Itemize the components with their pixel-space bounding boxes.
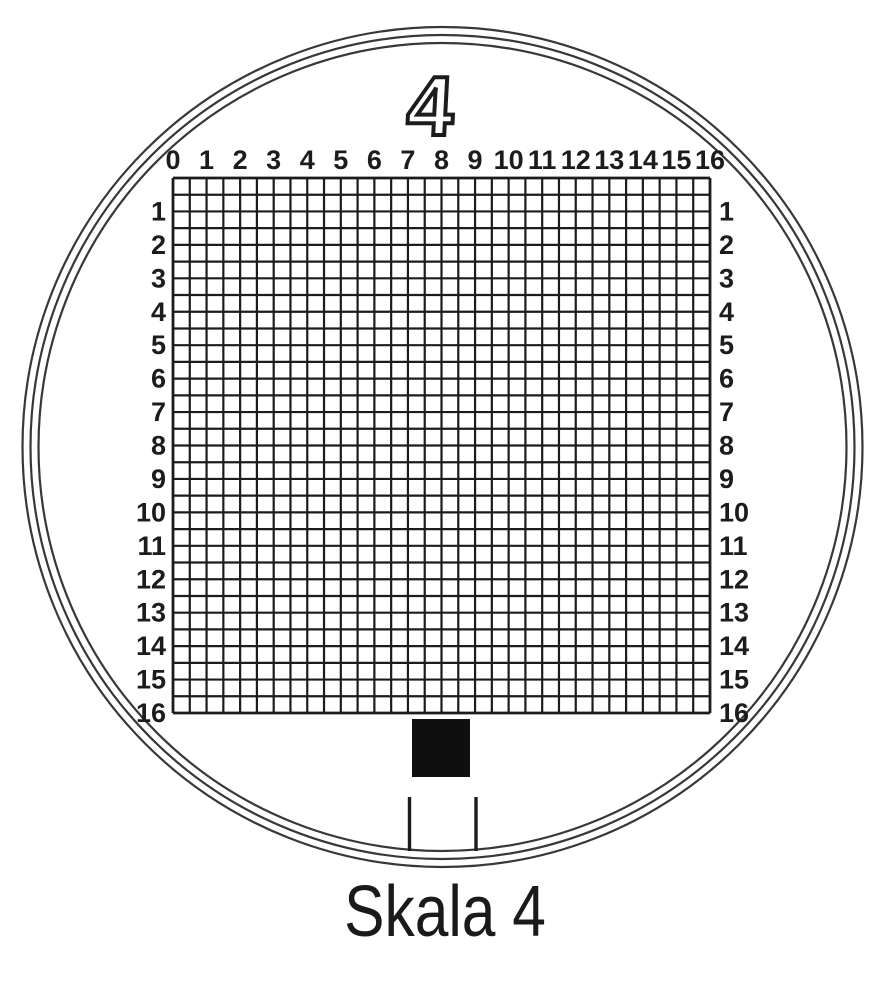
axis-label-right: 15 xyxy=(719,665,749,695)
axis-label-top: 1 xyxy=(199,145,214,175)
axis-label-right: 14 xyxy=(719,631,749,661)
axis-label-top: 0 xyxy=(165,145,180,175)
axis-label-right: 1 xyxy=(719,196,734,226)
axis-label-top: 12 xyxy=(561,145,591,175)
axis-label-top: 10 xyxy=(494,145,524,175)
reticle-graphic: 0123456789101112131415161234567891011121… xyxy=(0,0,875,1000)
axis-label-top: 11 xyxy=(528,145,557,175)
axis-label-right: 2 xyxy=(719,230,734,260)
axis-label-top: 9 xyxy=(468,145,483,175)
axis-label-right: 10 xyxy=(719,497,749,527)
calibration-square xyxy=(412,719,470,777)
axis-label-right: 5 xyxy=(719,330,734,360)
axis-label-right: 6 xyxy=(719,364,734,394)
axis-label-left: 15 xyxy=(136,665,166,695)
axis-label-top: 3 xyxy=(266,145,281,175)
axis-label-right: 13 xyxy=(719,598,749,628)
axis-label-left: 16 xyxy=(136,698,166,728)
axis-label-right: 12 xyxy=(719,564,749,594)
axis-label-left: 12 xyxy=(136,564,166,594)
axis-label-top: 4 xyxy=(300,145,315,175)
axis-label-right: 7 xyxy=(719,397,734,427)
axis-label-right: 16 xyxy=(719,698,749,728)
axis-label-right: 11 xyxy=(719,531,748,561)
axis-label-right: 3 xyxy=(719,263,734,293)
axis-label-left: 1 xyxy=(151,196,166,226)
axis-label-top: 6 xyxy=(367,145,382,175)
axis-label-left: 11 xyxy=(137,531,166,561)
axis-label-left: 2 xyxy=(151,230,166,260)
axis-label-left: 4 xyxy=(151,297,166,327)
axis-label-top: 15 xyxy=(661,145,691,175)
axis-label-left: 5 xyxy=(151,330,166,360)
axis-label-left: 10 xyxy=(136,497,166,527)
axis-label-left: 7 xyxy=(151,397,166,427)
axis-label-top: 2 xyxy=(233,145,248,175)
axis-label-right: 4 xyxy=(719,297,734,327)
axis-label-right: 8 xyxy=(719,431,734,461)
axis-label-left: 6 xyxy=(151,364,166,394)
scale-number-badge: 4 xyxy=(405,59,457,153)
axis-label-left: 14 xyxy=(136,631,166,661)
axis-label-top: 5 xyxy=(333,145,348,175)
caption-label: Skala 4 xyxy=(277,876,613,948)
axis-label-left: 8 xyxy=(151,431,166,461)
axis-label-left: 3 xyxy=(151,263,166,293)
axis-label-top: 14 xyxy=(628,145,658,175)
axis-label-right: 9 xyxy=(719,464,734,494)
axis-label-top: 13 xyxy=(594,145,624,175)
axis-label-left: 9 xyxy=(151,464,166,494)
reticle-figure: 0123456789101112131415161234567891011121… xyxy=(0,0,875,1000)
axis-label-left: 13 xyxy=(136,598,166,628)
axis-label-top: 16 xyxy=(695,145,725,175)
